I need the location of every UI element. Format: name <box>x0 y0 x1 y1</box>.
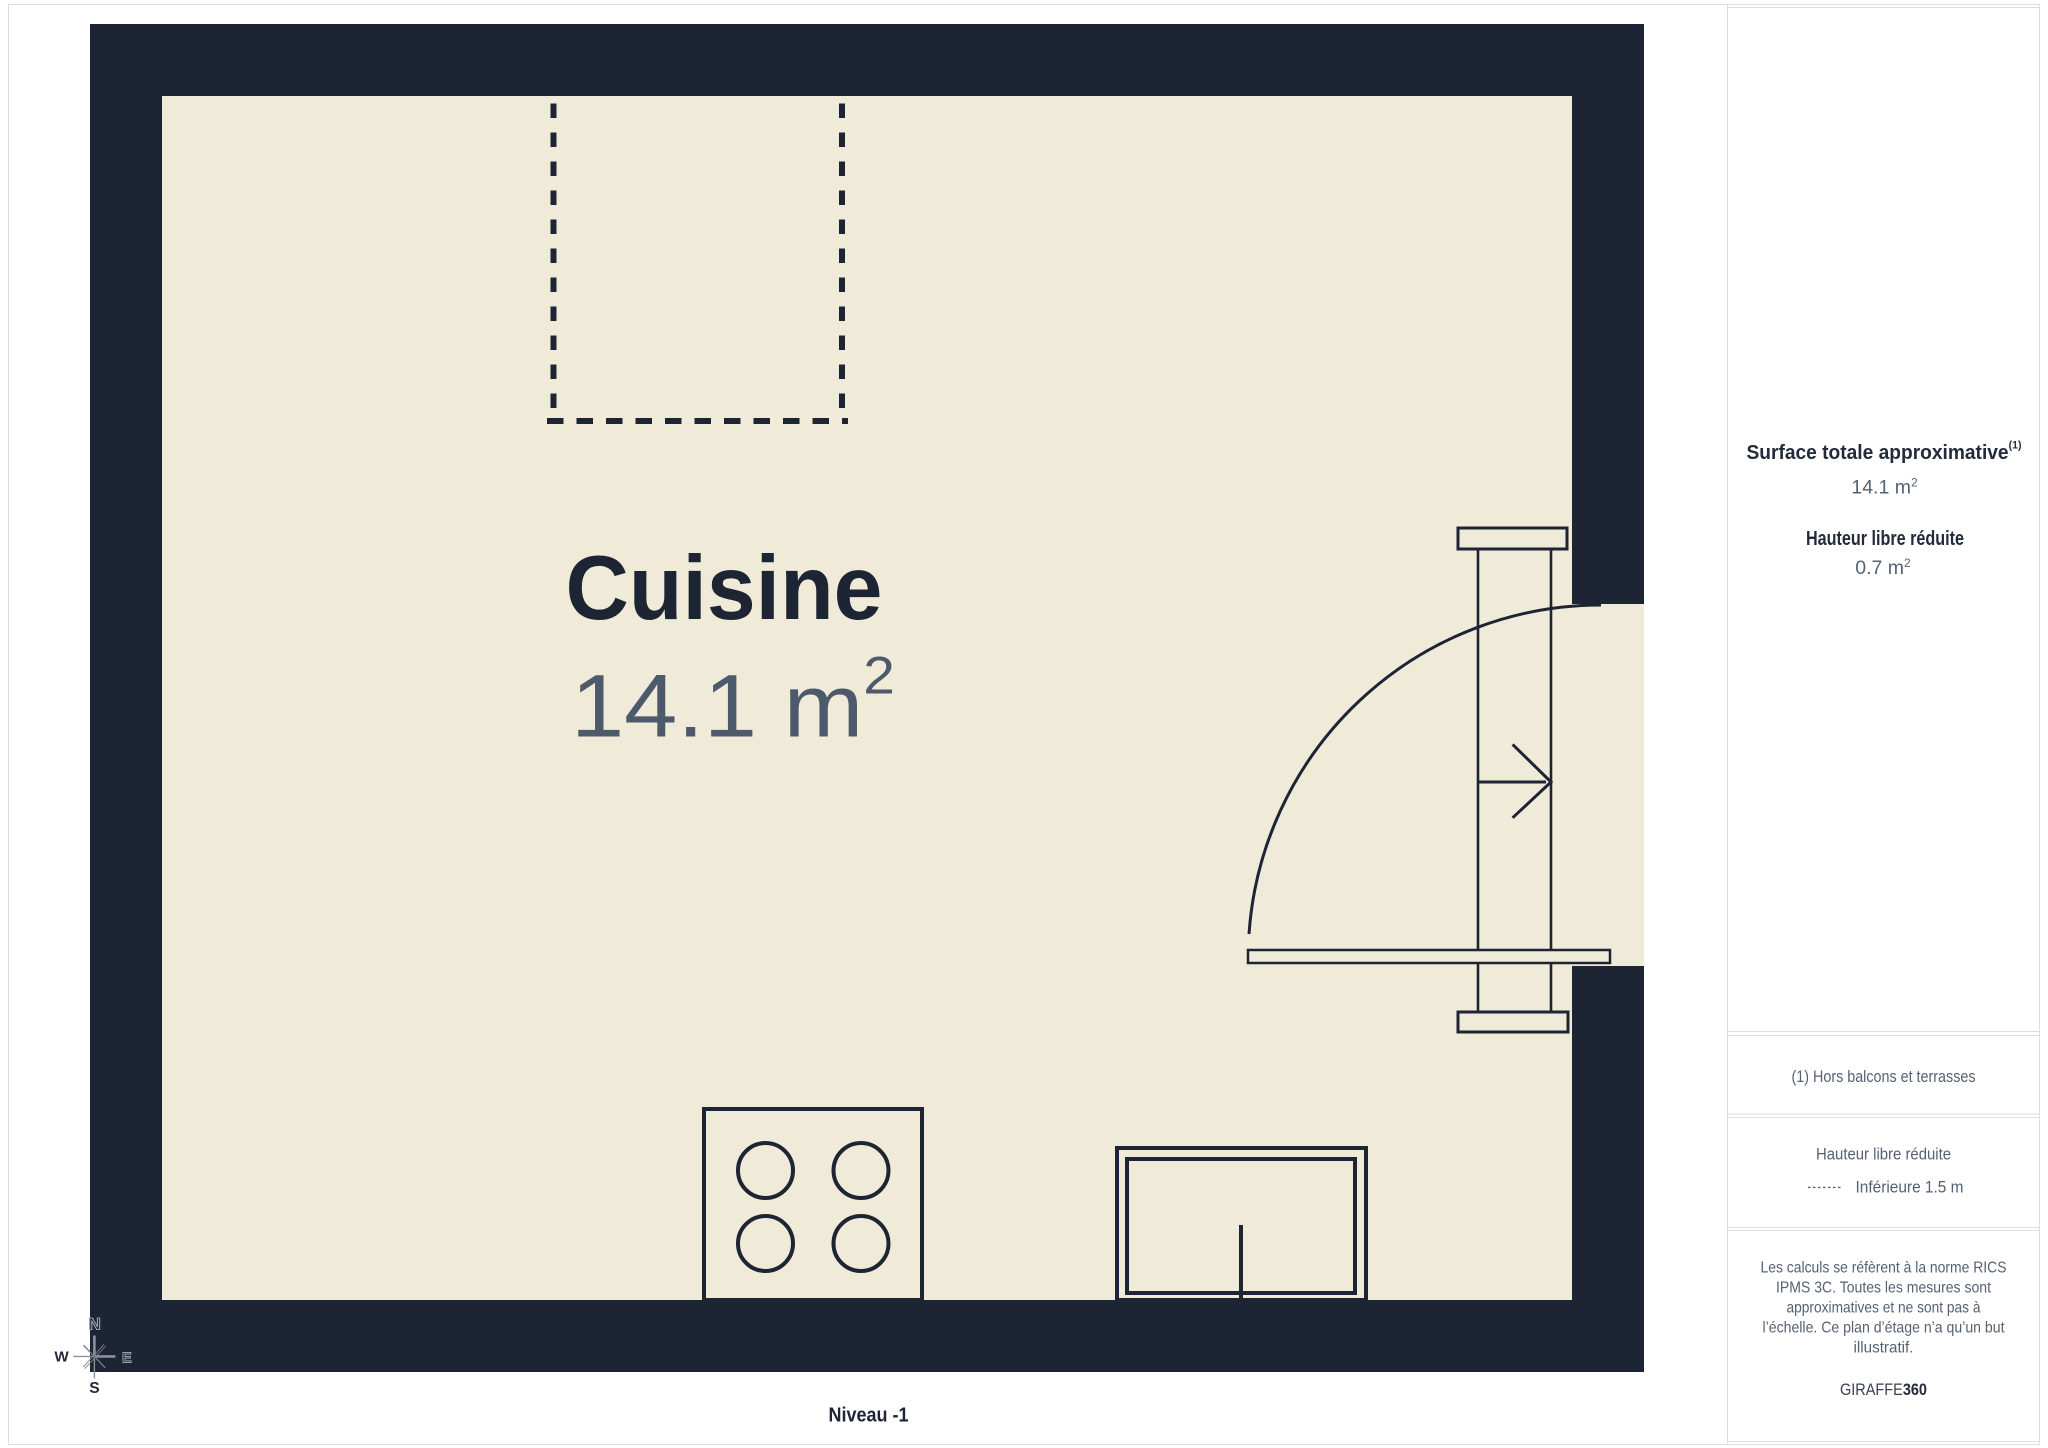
svg-text:S: S <box>89 1380 99 1397</box>
svg-text:0.7 m2: 0.7 m2 <box>1855 556 1911 579</box>
svg-text:Hauteur libre réduite: Hauteur libre réduite <box>1806 528 1964 550</box>
svg-text:Cuisine: Cuisine <box>566 538 883 639</box>
svg-text:Les calculs se réfèrent à la n: Les calculs se réfèrent à la norme RICS <box>1761 1259 2007 1276</box>
svg-text:14.1 m2: 14.1 m2 <box>1851 475 1918 498</box>
svg-text:W: W <box>54 1349 69 1366</box>
svg-text:Niveau -1: Niveau -1 <box>829 1405 909 1427</box>
svg-text:approximatives et ne sont pas: approximatives et ne sont pas à <box>1787 1299 1981 1316</box>
svg-text:Surface totale approximative(1: Surface totale approximative(1) <box>1747 440 2022 465</box>
svg-text:N: N <box>88 1314 100 1333</box>
svg-text:Inférieure 1.5 m: Inférieure 1.5 m <box>1856 1178 1964 1197</box>
svg-text:14.1 m2: 14.1 m2 <box>571 647 895 756</box>
svg-text:l’échelle. Ce plan d’étage n’a: l’échelle. Ce plan d’étage n’a qu’un but <box>1763 1319 2005 1336</box>
svg-text:E: E <box>122 1351 132 1367</box>
svg-text:Hauteur libre réduite: Hauteur libre réduite <box>1816 1145 1951 1163</box>
svg-text:IPMS 3C. Toutes les mesures so: IPMS 3C. Toutes les mesures sont <box>1776 1279 1991 1296</box>
svg-text:illustratif.: illustratif. <box>1854 1339 1914 1356</box>
svg-text:(1) Hors balcons et terrasses: (1) Hors balcons et terrasses <box>1792 1067 1976 1086</box>
svg-text:GIRAFFE360: GIRAFFE360 <box>1840 1381 1927 1399</box>
